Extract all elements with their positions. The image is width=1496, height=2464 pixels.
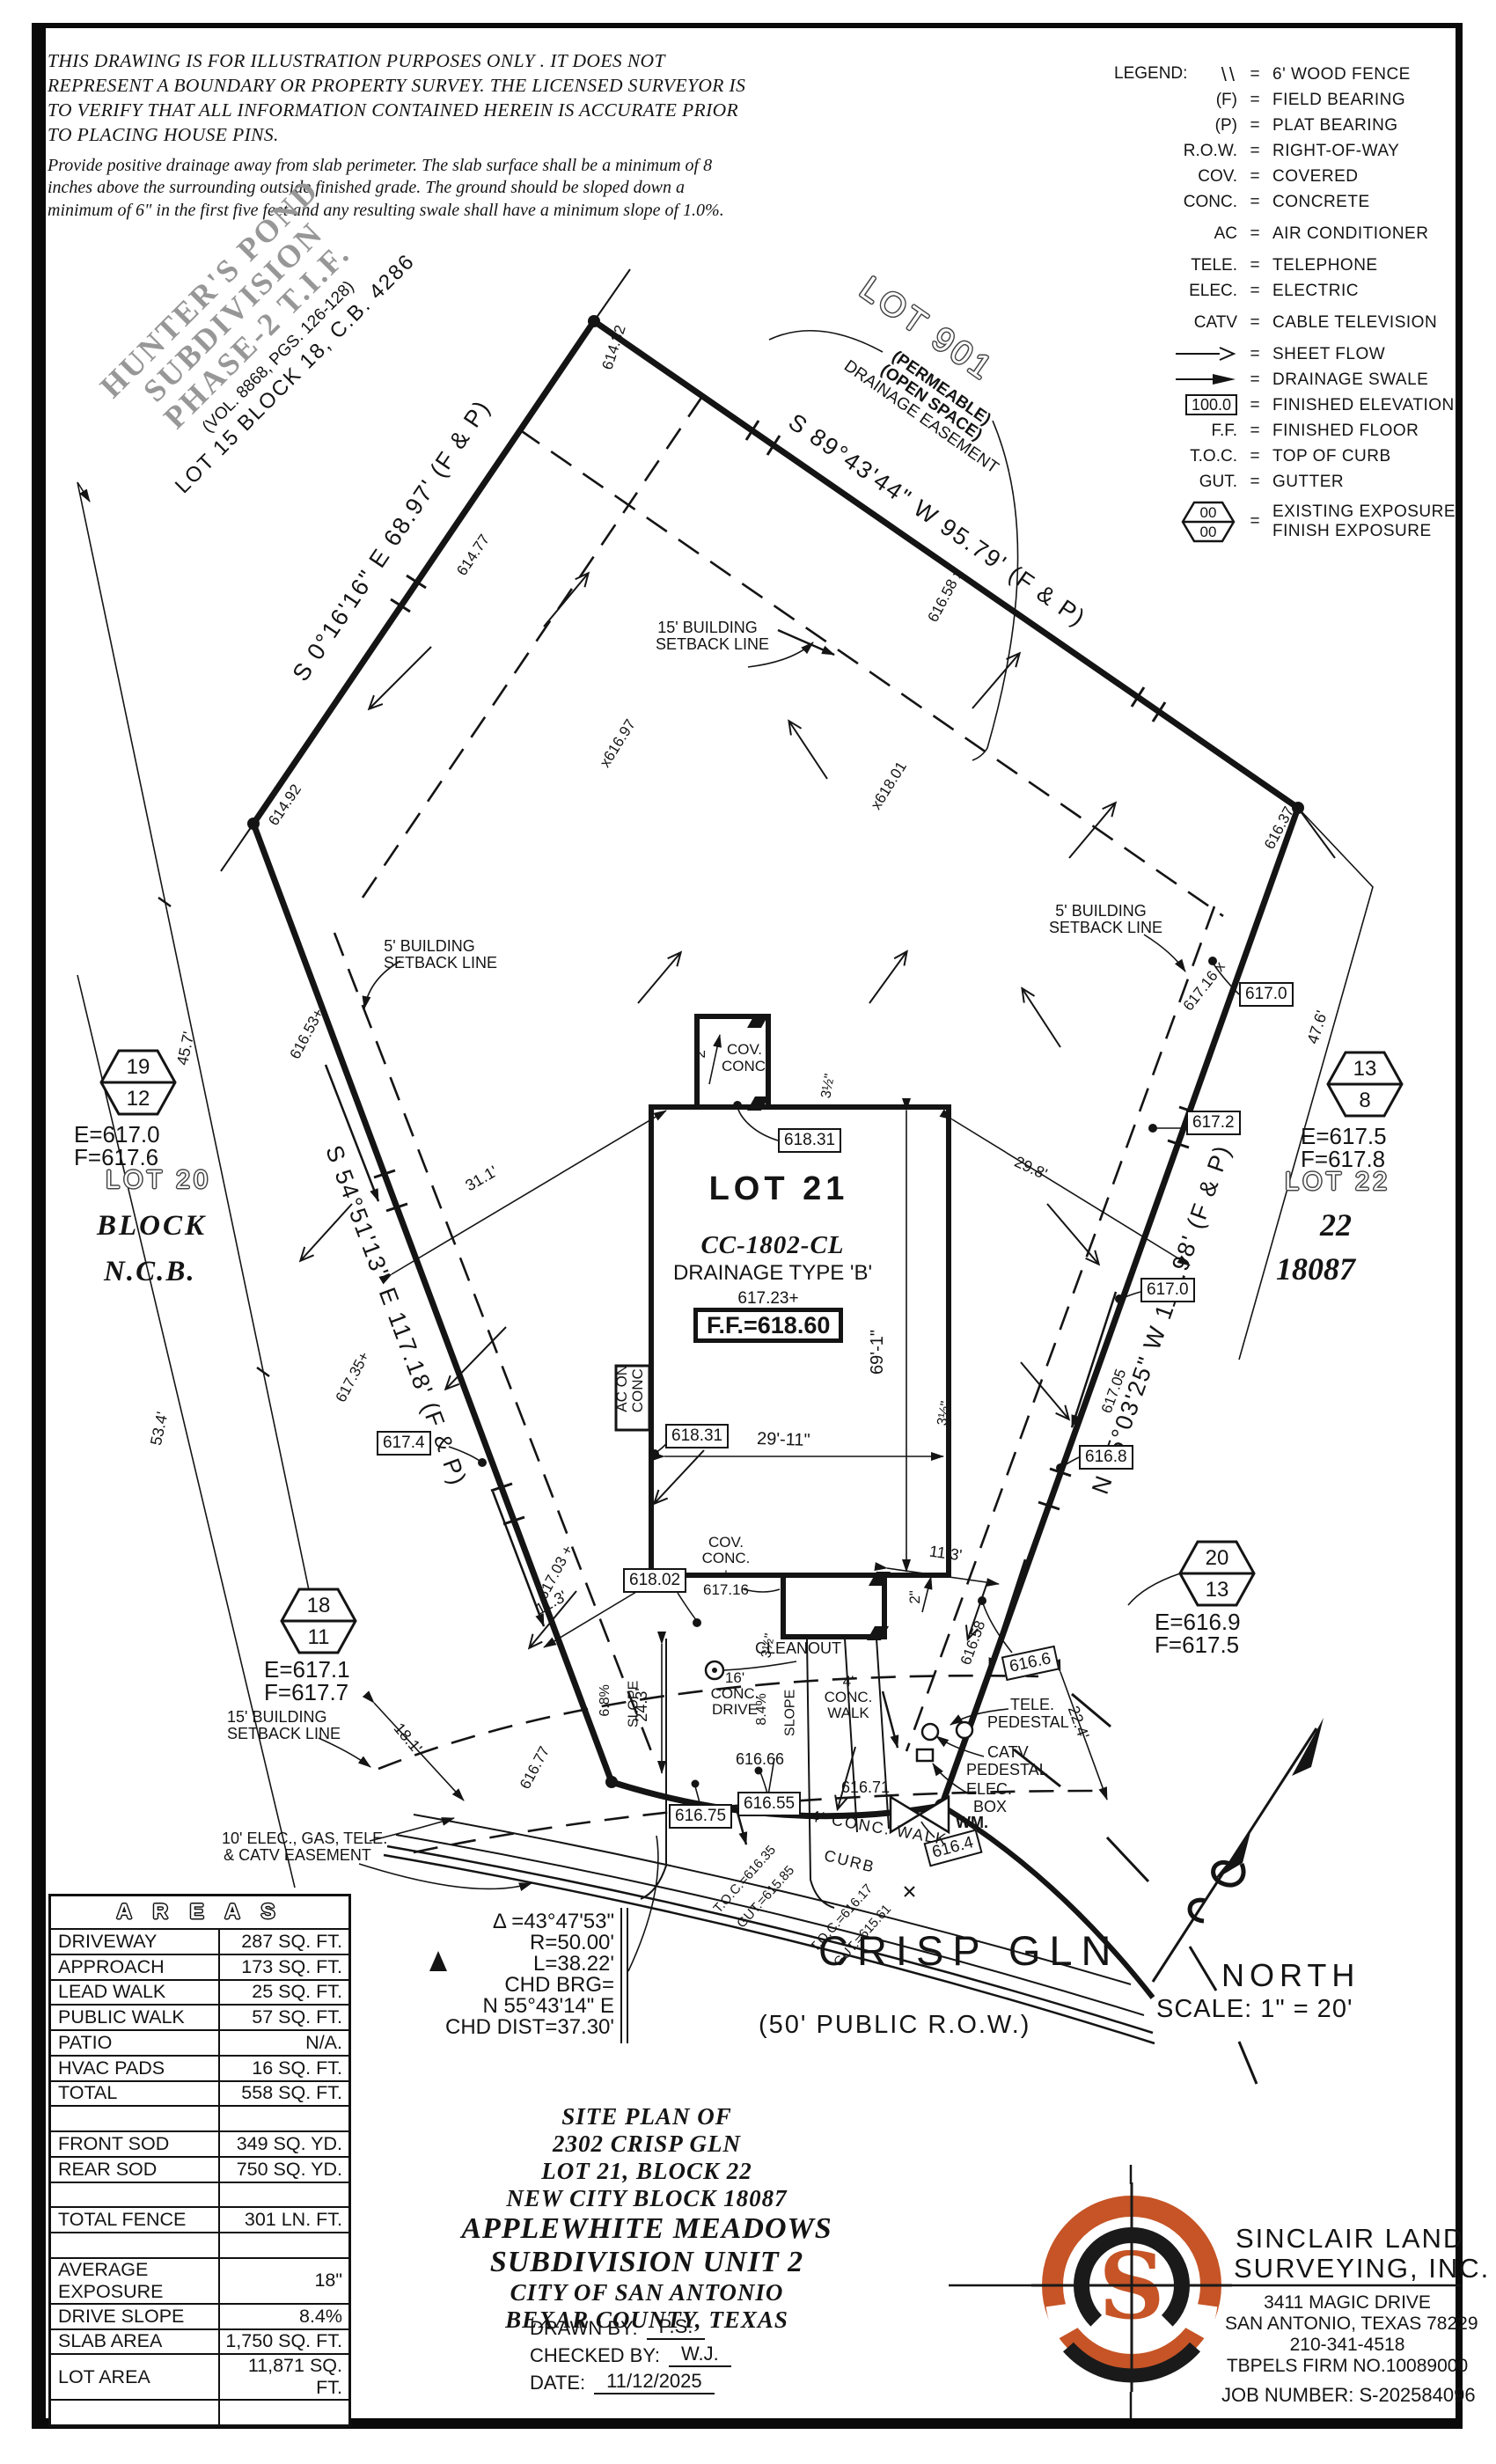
legend-row: AC=AIR CONDITIONER <box>1142 221 1494 246</box>
svg-text:00: 00 <box>1200 504 1217 521</box>
elevation-box-617-0: 617.0 <box>1239 982 1294 1007</box>
elevation-box-617-4: 617.4 <box>377 1431 431 1456</box>
plan-number: CC-1802-CL <box>676 1232 869 1258</box>
elevation-box-617-0: 617.0 <box>1140 1278 1195 1302</box>
catv-pedestal-label: CATV <box>987 1744 1029 1761</box>
checked-by-label: CHECKED BY: <box>530 2344 660 2367</box>
north-arrow <box>1153 1718 1324 1982</box>
lot-20-label: LOT 20 <box>106 1167 211 1193</box>
firm-name-1: SINCLAIR LAND <box>1236 2225 1464 2254</box>
disclaimer-text: THIS DRAWING IS FOR ILLUSTRATION PURPOSE… <box>48 49 752 148</box>
table-row: FRONT SOD349 SQ. YD. <box>51 2132 348 2158</box>
pad-elevation: 617.23+ <box>720 1290 817 1308</box>
legend-row: R.O.W.=RIGHT-OF-WAY <box>1142 138 1494 164</box>
block-label: BLOCK <box>97 1211 207 1242</box>
plat-22: 22 <box>1320 1209 1352 1243</box>
dim-2in-bottom: 2" <box>907 1590 923 1604</box>
dim-69-1: 69'-1" <box>869 1330 887 1375</box>
drainage-note: Provide positive drainage away from slab… <box>48 155 752 223</box>
exposure-se-top: 20 <box>1199 1547 1235 1569</box>
ac-on-conc: AC ONCONC. <box>614 1353 646 1424</box>
firm-tbpels: TBPELS FIRM NO.10089000 <box>1225 2357 1470 2376</box>
table-row <box>51 2183 348 2209</box>
table-row: PUBLIC WALK57 SQ. FT. <box>51 2006 348 2031</box>
drive-slope-68: 6.8% <box>598 1684 613 1716</box>
curve-data-block: Δ =43°47'53"R=50.00'L=38.22' CHD BRG=N 5… <box>387 1911 614 2038</box>
table-row: SLAB AREA1,750 SQ. FT. <box>51 2330 348 2356</box>
exposure-sw-bot: 11 <box>301 1626 336 1648</box>
north-label: NORTH <box>1221 1959 1360 1992</box>
dim-24-3: 24.3' <box>634 1688 650 1721</box>
street-row: (50' PUBLIC R.O.W.) <box>759 2012 1030 2038</box>
ncb-label: N.C.B. <box>104 1257 196 1287</box>
legend-row: =DRAINAGE SWALE <box>1142 367 1494 392</box>
table-row: DRIVE SLOPE8.4% <box>51 2305 348 2330</box>
street-name: CRISP GLN <box>818 1929 1120 1972</box>
cov-conc-top: COV. <box>727 1042 762 1058</box>
elevation-box-617-2: 617.2 <box>1186 1111 1241 1135</box>
water-meter-label: WM. <box>956 1815 988 1831</box>
legend-row: (P)=PLAT BEARING <box>1142 113 1494 138</box>
date-label: DATE: <box>530 2372 585 2394</box>
elec-box-label: ELEC. <box>966 1781 1012 1798</box>
drawn-by-label: DRAWN BY: <box>530 2317 638 2340</box>
areas-table: A R E A S DRIVEWAY287 SQ. FT. APPROACH17… <box>48 1894 351 2427</box>
plat-18087: 18087 <box>1276 1253 1355 1287</box>
cov-conc-bottom: COV.CONC.+617.16 <box>695 1535 757 1597</box>
date-value: 11/12/2025 <box>594 2370 714 2394</box>
exposure-ne-top: 13 <box>1347 1058 1382 1080</box>
title-block: SITE PLAN OF 2302 CRISP GLN LOT 21, BLOC… <box>427 2103 867 2334</box>
elevation-box-618-31: 618.31 <box>778 1128 841 1153</box>
exposure-se-bot: 13 <box>1199 1579 1235 1601</box>
legend-row: 0000 = EXISTING EXPOSUREFINISH EXPOSURE <box>1142 495 1494 549</box>
legend-row: 100.0=FINISHED ELEVATION <box>1142 392 1494 418</box>
elevation-box-618-31: 618.31 <box>665 1424 729 1448</box>
firm-phone: 210-341-4518 <box>1225 2336 1470 2355</box>
table-row: PATION/A. <box>51 2031 348 2057</box>
table-row <box>51 2233 348 2259</box>
exposure-sw-f: F=617.7 <box>264 1681 348 1705</box>
legend-row: GUT.=GUTTER <box>1142 469 1494 495</box>
exposure-se-f: F=617.5 <box>1155 1633 1239 1657</box>
table-row: TOTAL558 SQ. FT. <box>51 2082 348 2108</box>
drainage-swale-icon <box>1142 370 1237 390</box>
legend-row: ELEC.=ELECTRIC <box>1142 278 1494 304</box>
exposure-nw-bot: 12 <box>121 1088 156 1110</box>
wood-fence-symbol: \\ <box>1142 63 1237 86</box>
finished-elevation-symbol: 100.0 <box>1185 394 1237 415</box>
conc-drive-label: 16'CONC.DRIVE <box>709 1670 760 1718</box>
legend-row: CATV=CABLE TELEVISION <box>1142 310 1494 335</box>
legend-row: T.O.C.=TOP OF CURB <box>1142 444 1494 469</box>
signature-block: DRAWN BY:P.S. CHECKED BY:W.J. DATE:11/12… <box>530 2313 731 2394</box>
easement-10-label: 10' ELEC., GAS, TELE.& CATV EASEMENT <box>222 1830 373 1864</box>
elevation-box-618-02: 618.02 <box>623 1568 686 1593</box>
disclaimer-block: THIS DRAWING IS FOR ILLUSTRATION PURPOSE… <box>48 49 752 223</box>
table-row: DRIVEWAY287 SQ. FT. <box>51 1930 348 1955</box>
sheet-flow-icon <box>1142 345 1237 364</box>
title-address: 2302 CRISP GLN <box>427 2130 867 2158</box>
exposure-nw-f: F=617.6 <box>74 1146 158 1170</box>
finished-floor-box: F.F.=618.60 <box>693 1308 843 1343</box>
porch-dim-2in: 2" <box>693 1045 708 1059</box>
setback-5-left: 5' BUILDINGSETBACK LINE <box>384 938 475 972</box>
job-number: JOB NUMBER: S-202584096 <box>1221 2385 1476 2405</box>
legend-row: =SHEET FLOW <box>1142 341 1494 367</box>
elevation-box-616-8: 616.8 <box>1079 1445 1133 1470</box>
legend-row: CONC.=CONCRETE <box>1142 189 1494 215</box>
setback-15-top: 15' BUILDINGSETBACK LINE <box>656 620 759 653</box>
exposure-ne-bot: 8 <box>1347 1089 1382 1111</box>
exposure-sw-top: 18 <box>301 1595 336 1617</box>
lead-walk-label: 4'CONC.WALK <box>822 1674 875 1721</box>
exposure-hexagon-icon: 0000 <box>1142 497 1237 546</box>
setback-15-bottom: 15' BUILDINGSETBACK LINE <box>227 1709 324 1742</box>
title-line: SITE PLAN OF <box>427 2103 867 2130</box>
dim-29-11: 29'-11" <box>757 1430 810 1450</box>
exposure-ne-f: F=617.8 <box>1301 1148 1385 1171</box>
lot-21-label: LOT 21 <box>700 1172 858 1207</box>
table-row: APPROACH173 SQ. FT. <box>51 1955 348 1981</box>
firm-address-2: SAN ANTONIO, TEXAS 78229 <box>1225 2314 1470 2334</box>
exposure-nw-top: 19 <box>121 1056 156 1078</box>
spot-616-66: 616.66 <box>736 1751 784 1768</box>
table-row <box>51 2107 348 2132</box>
legend-row: (F)=FIELD BEARING <box>1142 87 1494 113</box>
legend: \\=6' WOOD FENCE (F)=FIELD BEARING (P)=P… <box>1142 62 1494 549</box>
tele-pedestal-label: TELE. <box>1010 1697 1054 1713</box>
firm-name-2: SURVEYING, INC. <box>1234 2255 1490 2284</box>
legend-row: F.F.=FINISHED FLOOR <box>1142 418 1494 444</box>
drawn-by-value: P.S. <box>647 2315 706 2340</box>
elevation-box-616-75: 616.75 <box>669 1804 732 1829</box>
drive-slope-84: 8.4% <box>755 1693 770 1725</box>
svg-text:00: 00 <box>1200 524 1217 540</box>
legend-row: COV.=COVERED <box>1142 164 1494 189</box>
table-row: LOT AREA11,871 SQ. FT. <box>51 2355 348 2401</box>
legend-row: \\=6' WOOD FENCE <box>1142 62 1494 87</box>
table-row: HVAC PADS16 SQ. FT. <box>51 2057 348 2082</box>
checked-by-value: W.J. <box>669 2343 731 2367</box>
subdivision-name: APPLEWHITE MEADOWS <box>427 2212 867 2246</box>
scale-label: SCALE: 1" = 20' <box>1156 1996 1353 2022</box>
table-row: REAR SOD750 SQ. YD. <box>51 2158 348 2183</box>
table-row: LEAD WALK25 SQ. FT. <box>51 1981 348 2006</box>
setback-5-right: 5' BUILDINGSETBACK LINE <box>1049 903 1153 936</box>
firm-address-1: 3411 MAGIC DRIVE <box>1225 2293 1470 2313</box>
areas-table-header: A R E A S <box>51 1896 348 1930</box>
elevation-box-616-55: 616.55 <box>737 1792 801 1816</box>
table-row <box>51 2401 348 2424</box>
drainage-type: DRAINAGE TYPE 'B' <box>653 1262 892 1284</box>
lot-22-label: LOT 22 <box>1285 1169 1390 1195</box>
site-plan-sheet: THIS DRAWING IS FOR ILLUSTRATION PURPOSE… <box>0 0 1496 2464</box>
legend-row: TELE.=TELEPHONE <box>1142 253 1494 278</box>
sinclair-logo: S <box>1030 2181 1234 2394</box>
table-row: AVERAGE EXPOSURE18" <box>51 2259 348 2305</box>
spot-616-71: 616.71 <box>841 1779 890 1796</box>
table-row: TOTAL FENCE301 LN. FT. <box>51 2208 348 2233</box>
